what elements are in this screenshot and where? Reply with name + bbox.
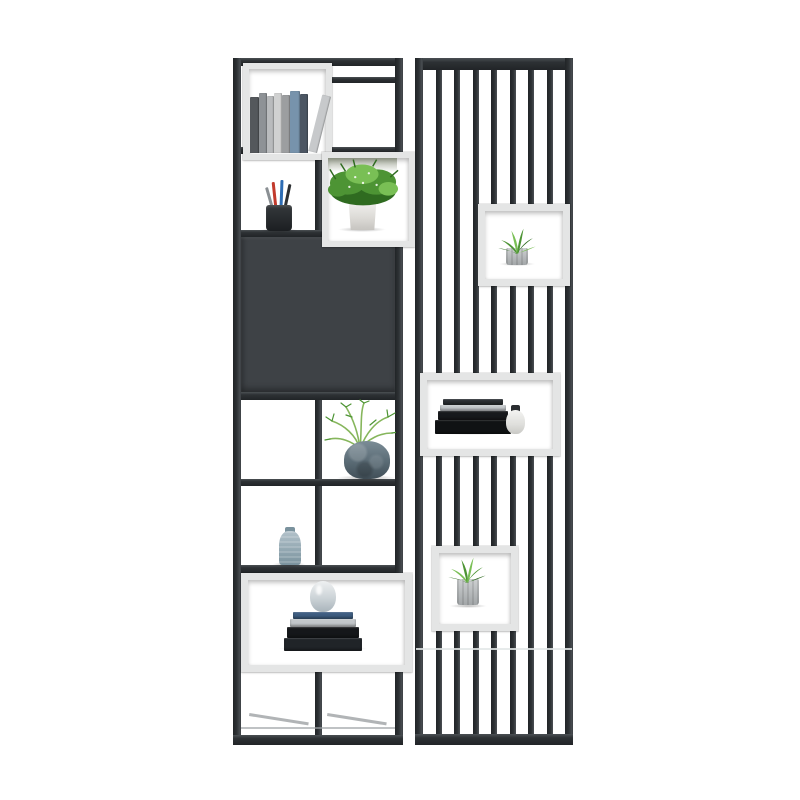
stacked-book: [290, 619, 356, 627]
book-spine: [267, 96, 274, 153]
floor-book-stack: [283, 612, 363, 651]
book-spine: [282, 95, 290, 153]
shelf-left-post: [233, 58, 241, 745]
blue-jar: [279, 531, 301, 565]
wall-book-stack: [434, 399, 512, 434]
book-spine: [308, 95, 331, 153]
screen-bottom-rail: [415, 734, 573, 745]
bookshelf-room-divider: [0, 0, 800, 800]
pencil-cup: [266, 205, 292, 231]
stacked-book: [284, 638, 362, 651]
book-display-box: [243, 63, 332, 160]
stacked-book: [435, 420, 511, 434]
book-spine: [259, 93, 267, 153]
book-spine: [274, 93, 282, 153]
product-photo-stage: [0, 0, 800, 800]
shelf-back-rail-line: [241, 727, 395, 729]
stacked-book: [438, 411, 508, 420]
stacked-book: [293, 612, 353, 619]
shelf-depth-line-right: [327, 713, 387, 725]
teardrop-vase: [310, 581, 336, 612]
leafy-plant: [326, 157, 400, 207]
book-spine: [290, 91, 300, 153]
book-row: [250, 87, 317, 153]
book-spine: [250, 97, 259, 153]
mini-vase: [506, 410, 525, 434]
book-spine: [300, 94, 308, 153]
screen-top-rail: [415, 58, 573, 70]
shelf-sub-rail: [322, 77, 395, 83]
succulent-plant-1: [495, 226, 539, 254]
shelf-depth-line-left: [249, 713, 309, 725]
shelf-divider-5: [241, 565, 395, 573]
shelf-bottom-rail: [233, 735, 403, 745]
screen-joint-line: [416, 648, 572, 650]
blue-stone-pot: [344, 441, 390, 479]
succulent-plant-2: [446, 555, 488, 583]
stacked-book: [287, 627, 359, 638]
blue-pen: [280, 180, 284, 208]
screen-right-post: [565, 58, 573, 745]
cabinet-door: [241, 237, 395, 392]
